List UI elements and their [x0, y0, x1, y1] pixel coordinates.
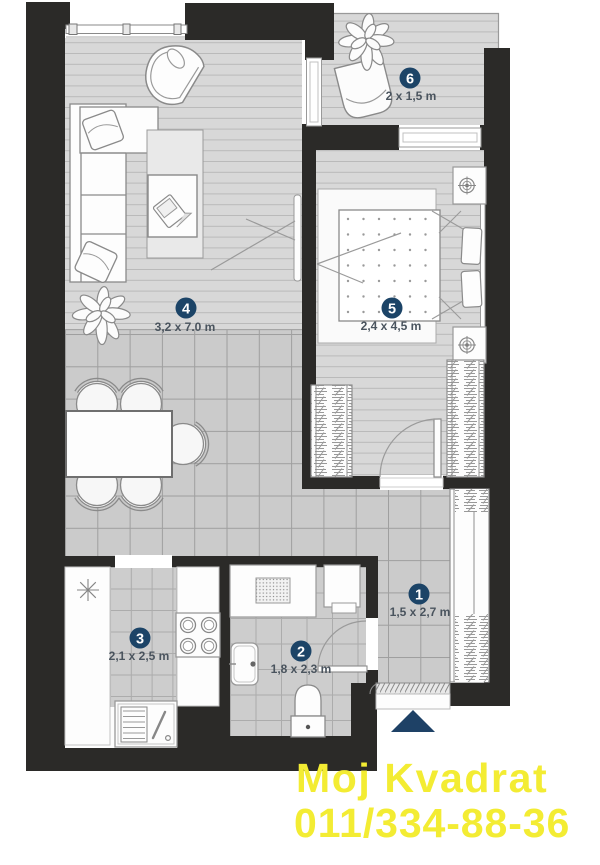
svg-text:6: 6: [406, 72, 414, 88]
svg-text:1: 1: [415, 588, 423, 604]
svg-text:1,5 x 2,7 m: 1,5 x 2,7 m: [390, 605, 451, 619]
svg-text:5: 5: [388, 302, 396, 318]
svg-text:4: 4: [182, 302, 190, 318]
svg-text:3,2 x 7.0 m: 3,2 x 7.0 m: [155, 320, 216, 334]
svg-text:1,8 x 2,3 m: 1,8 x 2,3 m: [271, 662, 332, 676]
svg-text:Moj Kvadrat: Moj Kvadrat: [296, 755, 548, 801]
svg-text:011/334-88-36: 011/334-88-36: [294, 800, 570, 846]
svg-text:3: 3: [136, 632, 144, 648]
svg-text:2,1 x 2,5 m: 2,1 x 2,5 m: [109, 649, 170, 663]
svg-text:2,4 x 4,5 m: 2,4 x 4,5 m: [361, 319, 422, 333]
svg-text:2 x 1,5 m: 2 x 1,5 m: [386, 89, 437, 103]
svg-text:2: 2: [297, 645, 305, 661]
